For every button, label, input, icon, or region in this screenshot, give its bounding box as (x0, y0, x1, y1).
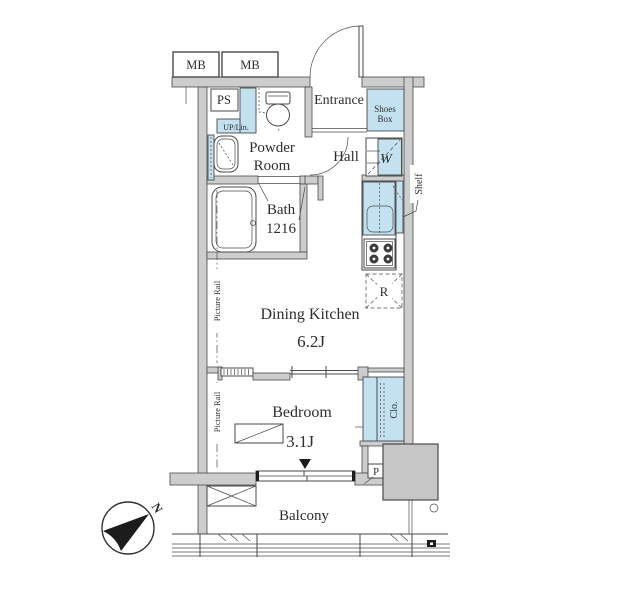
dining-kitchen-label: Dining Kitchen (260, 306, 359, 323)
bedroom-area: Picture Rail Bedroom 3.1J Clo. P (211, 377, 404, 484)
floor-plan: MB MB Shoes Box Entrance Hall PS UP/Lin.… (0, 0, 617, 603)
closet-label: Clo. (389, 402, 400, 419)
slab-hatch-ticks (218, 534, 408, 541)
bath-leader-left (259, 184, 268, 201)
mb-right-label: MB (240, 58, 259, 72)
floor-plan-drawing: MB MB Shoes Box Entrance Hall PS UP/Lin.… (0, 0, 617, 603)
wall-partition-mid (253, 373, 290, 380)
mb-left-label: MB (186, 58, 205, 72)
bedroom-size-label: 3.1J (286, 432, 314, 451)
wall-top-right (362, 77, 424, 87)
bath-size-label: 1216 (266, 221, 297, 237)
shoes-box-label-1: Shoes (374, 104, 396, 114)
wall-bedroom-south-left (170, 473, 256, 485)
window-jamb-left (256, 471, 259, 481)
entrance-door-leaf (359, 26, 363, 77)
wall-top-left (172, 77, 310, 87)
compass-needle (103, 514, 149, 551)
pipe-space-label: PS (217, 93, 231, 107)
wall-bath-south (207, 252, 307, 259)
wall-hall-south (305, 176, 318, 184)
toilet-tank-icon (266, 92, 290, 104)
toilet-bowl-icon (267, 104, 290, 126)
balcony-label: Balcony (279, 508, 329, 524)
wall-dk-door-jamb (318, 176, 323, 200)
wall-bedroom-east (362, 446, 368, 473)
boundary-marker-dot (430, 543, 433, 546)
shoes-box-label-2: Box (377, 114, 393, 124)
shelf-label: Shelf (414, 173, 425, 195)
kitchen-shelf-strip (396, 181, 403, 233)
wall-powder-bath-left (207, 176, 258, 184)
wall-entrance-powder (305, 87, 312, 137)
entrance-label: Entrance (314, 93, 364, 108)
bath-label: Bath (267, 202, 296, 218)
entrance-door-swing-arc (310, 26, 361, 77)
stove-box (364, 239, 395, 268)
kitchen-area: W R Shelf (362, 138, 426, 308)
hall-label: Hall (333, 149, 359, 165)
picture-rail-bedroom-label: Picture Rail (212, 391, 222, 432)
meter-boxes: MB MB (173, 52, 278, 77)
powder-room-area: PS UP/Lin. Powder Room (208, 88, 295, 180)
bedroom-label: Bedroom (272, 404, 332, 421)
picture-rail-dk-label: Picture Rail (212, 280, 222, 321)
bath-area: Bath 1216 (212, 184, 305, 252)
compass-north-label: N (149, 500, 166, 515)
powder-room-label-1: Powder (249, 140, 295, 156)
wall-closet-north (368, 368, 404, 372)
window-jamb-right (352, 471, 355, 481)
balcony-partition-box (383, 444, 438, 500)
wall-left (198, 87, 207, 534)
balcony-area: Balcony (172, 444, 450, 557)
up-lin-label: UP/Lin. (223, 123, 249, 132)
refrigerator-label: R (380, 284, 389, 299)
dining-kitchen-size-label: 6.2J (297, 332, 325, 351)
drain-circle (430, 504, 438, 512)
powder-room-label-2: Room (254, 158, 291, 174)
washer-label: W (380, 152, 393, 167)
wall-right (404, 77, 413, 445)
compass-icon: N (102, 500, 165, 554)
south-marker-triangle (299, 459, 311, 469)
bathtub-icon (212, 187, 256, 252)
pole-label: P (373, 467, 379, 478)
